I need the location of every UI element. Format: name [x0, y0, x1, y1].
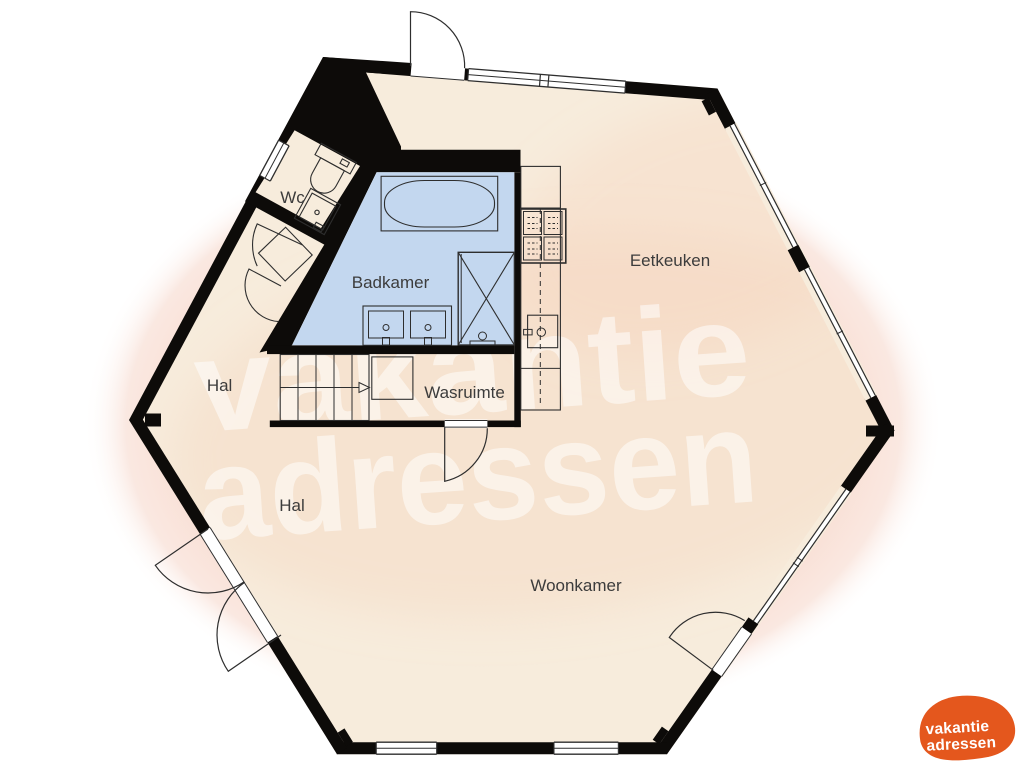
- svg-text:Woonkamer: Woonkamer: [530, 576, 622, 595]
- svg-text:Wc: Wc: [280, 188, 305, 207]
- svg-text:adressen: adressen: [926, 734, 996, 755]
- svg-text:Eetkeuken: Eetkeuken: [630, 251, 710, 270]
- svg-text:Hal: Hal: [207, 376, 233, 395]
- svg-text:Wasruimte: Wasruimte: [424, 383, 505, 402]
- svg-text:Badkamer: Badkamer: [352, 273, 430, 292]
- svg-text:Hal: Hal: [279, 496, 305, 515]
